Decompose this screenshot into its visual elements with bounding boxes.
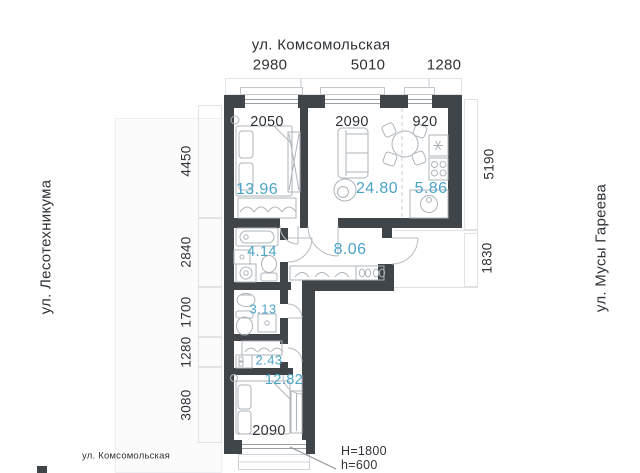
entrance-door-arc bbox=[392, 238, 418, 264]
bedroom1-door-arc bbox=[280, 226, 298, 244]
area-bedroom-1: 13.96 bbox=[236, 181, 278, 199]
dim-living-width: 2090 bbox=[335, 114, 368, 130]
wardrobe2-icon bbox=[291, 391, 302, 433]
dim-bedroom2-width: 2090 bbox=[252, 423, 285, 439]
street-label-right: ул. Мусы Гареева bbox=[593, 184, 610, 312]
window-sill-note: h=600 bbox=[341, 458, 378, 472]
nightstand-icon bbox=[231, 116, 239, 124]
street-label-left: ул. Лесотехникума bbox=[38, 180, 55, 315]
wardrobe-door-arc bbox=[288, 348, 302, 362]
dim-top-3: 1280 bbox=[427, 57, 462, 74]
window-height-note: H=1800 bbox=[341, 444, 387, 458]
fridge-icon bbox=[429, 135, 448, 156]
closet-hangers-icon bbox=[238, 198, 296, 218]
stove-icon bbox=[429, 158, 448, 180]
furniture-layer bbox=[0, 0, 640, 473]
area-bedroom-2: 12.82 bbox=[265, 372, 303, 388]
hall-hangers-icon bbox=[290, 266, 356, 280]
window-glass-lines bbox=[242, 100, 432, 449]
floor-plan: ул. Комсомольская ул. Лесотехникума ул. … bbox=[0, 0, 640, 473]
street-label-top: ул. Комсомольская bbox=[252, 37, 391, 54]
street-label-bottom: ул. Комсомольская bbox=[82, 451, 170, 462]
dim-right-1: 5190 bbox=[482, 148, 497, 179]
dim-left-5: 3080 bbox=[179, 389, 194, 420]
dim-top-2: 5010 bbox=[351, 57, 386, 74]
area-wc: 3.13 bbox=[250, 302, 277, 317]
dim-left-1: 4450 bbox=[179, 145, 194, 176]
dim-top-1: 2980 bbox=[253, 57, 288, 74]
area-hallway: 8.06 bbox=[334, 241, 367, 259]
wardrobe-icon bbox=[288, 132, 300, 192]
bathroom-door-arc bbox=[288, 238, 312, 262]
area-wardrobe: 2.43 bbox=[256, 353, 283, 368]
dim-kitchen-width: 920 bbox=[412, 114, 437, 130]
sofa-icon bbox=[338, 128, 368, 178]
dim-bedroom1-width: 2050 bbox=[250, 114, 283, 130]
shoe-rack-icon bbox=[356, 266, 385, 280]
window-note-leader bbox=[290, 447, 336, 469]
nightstand2-icon bbox=[231, 375, 238, 382]
area-kitchen: 5.86 bbox=[415, 180, 448, 198]
dim-right-2: 1830 bbox=[480, 242, 495, 273]
armchair-icon bbox=[334, 179, 356, 201]
washing-machine-icon bbox=[236, 264, 256, 282]
wc-door-arc bbox=[288, 304, 302, 318]
dim-left-2: 2840 bbox=[179, 236, 194, 267]
dim-left-4: 1280 bbox=[179, 336, 194, 367]
area-living-room: 24.80 bbox=[356, 180, 398, 198]
dim-left-3: 1700 bbox=[179, 296, 194, 327]
wc-washer-icon bbox=[258, 314, 276, 332]
wardrobe-shelf-icon bbox=[236, 355, 252, 368]
area-bathroom: 4.14 bbox=[247, 244, 277, 260]
